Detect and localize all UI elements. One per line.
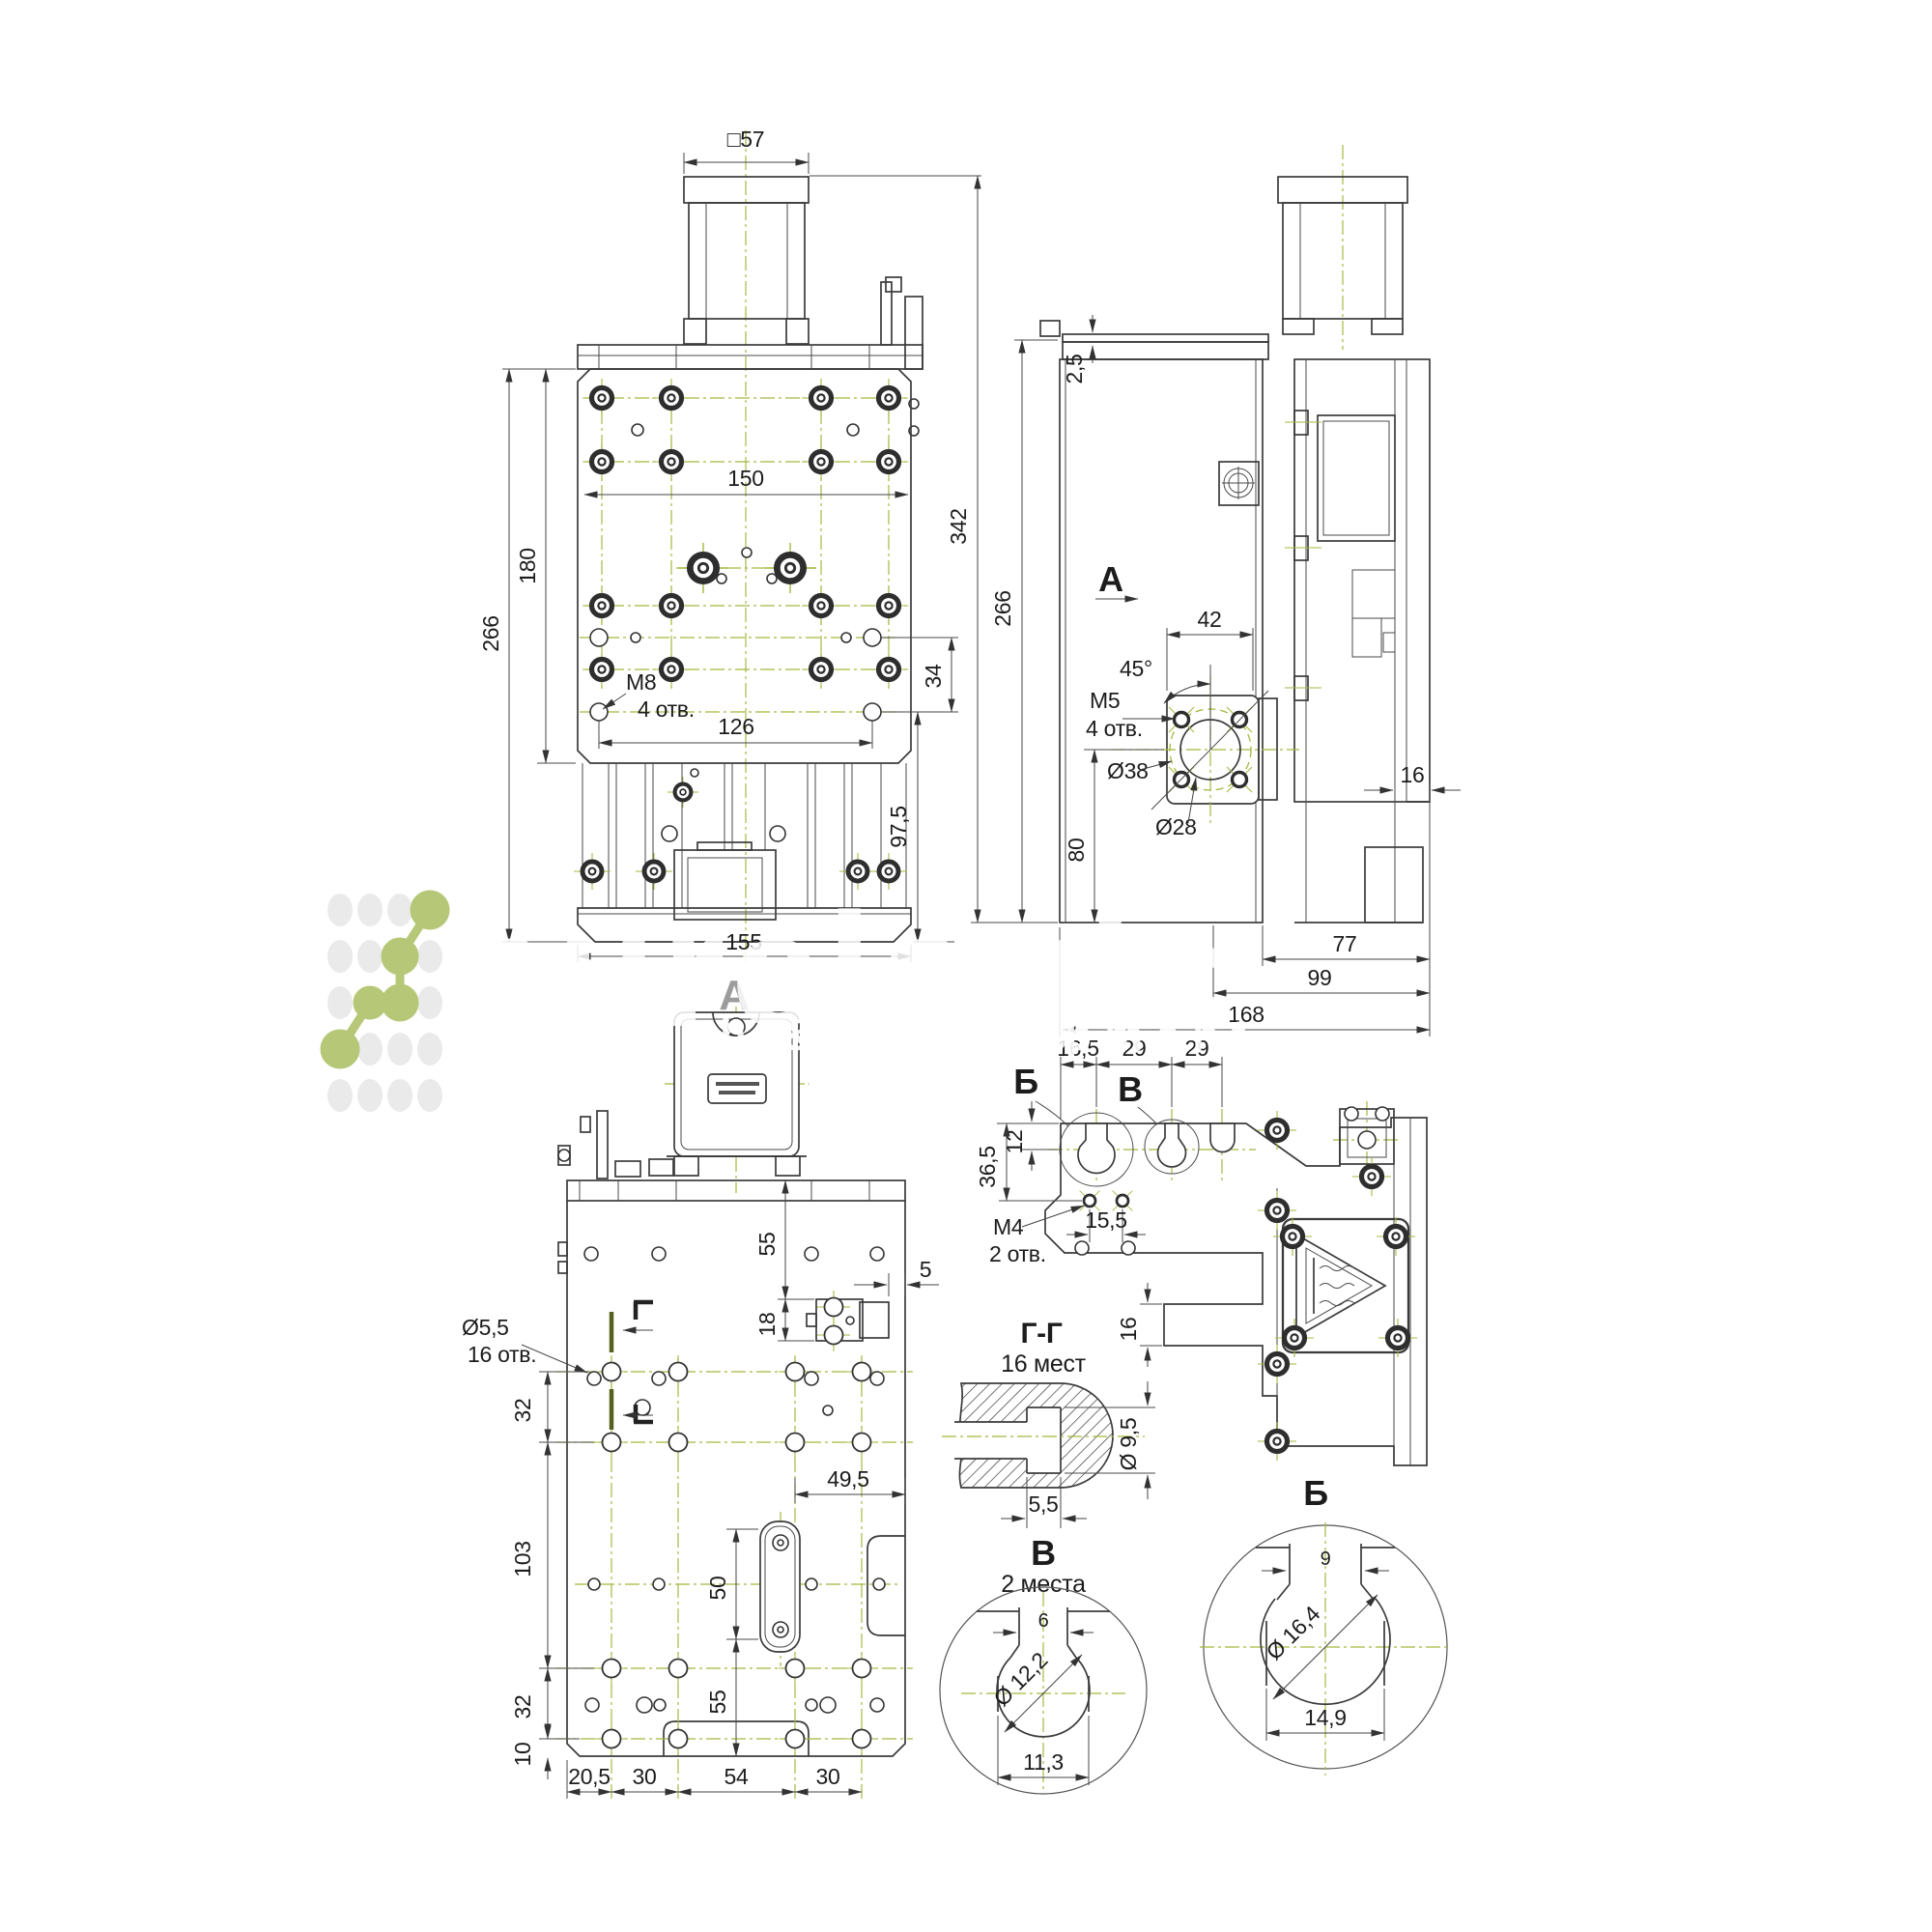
dim-slot-depth: 12 (1002, 1130, 1027, 1154)
front-view: □57 150 180 266 126 34 97,5 155 M8 4 отв… (478, 127, 958, 962)
detail-v-callout: В (1118, 1069, 1143, 1109)
top-view: А (462, 972, 939, 1799)
section-gg: Г-Г 16 мест Ø 9,5 5,5 (942, 1318, 1155, 1528)
dim-flange-offset: 42 (1198, 607, 1222, 632)
dim-counterbore-depth: 5,5 (1028, 1492, 1058, 1517)
dim-col-4: 30 (816, 1764, 840, 1789)
dim-edge-offset: 55 (754, 1233, 780, 1257)
dim-plate-thickness: 2,5 (1062, 354, 1087, 384)
label-thread-m8: M8 (626, 669, 656, 695)
label-thread-m5: M5 (1090, 688, 1120, 713)
dim-motor-width: □57 (727, 127, 765, 152)
dim-dia-b: Ø 16,4 (1261, 1601, 1324, 1664)
dim-slot-length: 50 (705, 1577, 730, 1601)
purelogic-logo-icon (325, 894, 445, 1112)
dim-slot-width-v: 6 (1038, 1610, 1049, 1632)
drawing-canvas: □57 150 180 266 126 34 97,5 155 M8 4 отв… (0, 0, 1932, 1932)
dim-depth-2: 99 (1308, 965, 1332, 990)
dim-hole-offset: 36,5 (975, 1146, 1000, 1188)
dim-row-gap-4: 10 (510, 1743, 535, 1767)
dim-holes-gap: 34 (921, 664, 946, 688)
section-places: 16 мест (1001, 1350, 1087, 1378)
dim-flange-angle: 45° (1120, 656, 1152, 681)
watermark-tagline: research & development (477, 1010, 1259, 1061)
view-a-label: А (1098, 559, 1123, 599)
dim-arm-width: 16 (1116, 1318, 1141, 1342)
dim-row-gap-2: 103 (510, 1541, 535, 1577)
dim-flat-width-v: 11,3 (1023, 1749, 1064, 1775)
detail-b: Б 9 Ø 16,4 14,9 (1200, 1483, 1447, 1776)
dim-height: 266 (478, 615, 503, 651)
dim-depth-1: 77 (1333, 931, 1357, 956)
label-thread-m5-count: 4 отв. (1086, 716, 1143, 741)
label-thread-m4: M4 (993, 1214, 1024, 1239)
dim-slot-width-b: 9 (1321, 1548, 1331, 1570)
dim-col-3: 54 (724, 1764, 749, 1789)
dim-side-height: 266 (990, 590, 1015, 626)
dim-row-gap-3: 32 (510, 1695, 535, 1719)
dim-slot-offset: 49,5 (827, 1466, 869, 1492)
label-thread-m4-count: 2 отв. (989, 1241, 1046, 1266)
detail-v: В 2 места 6 Ø 12,2 11,3 (940, 1533, 1147, 1794)
dim-overall-height: 342 (946, 508, 971, 544)
dim-side-gap: 5 (920, 1257, 932, 1282)
dim-rail-height: 97,5 (886, 806, 911, 848)
dim-switch-offset: 18 (754, 1313, 780, 1337)
watermark-brand-bottom: purelogic (415, 1884, 1198, 1932)
dim-plate-width: 150 (727, 466, 763, 491)
dim-col-1: 20,5 (568, 1764, 611, 1789)
label-thread-m8-count: 4 отв. (638, 696, 695, 722)
label-hole-dia: Ø5,5 (462, 1315, 509, 1340)
dim-bolt-circle: Ø38 (1107, 758, 1149, 783)
dim-thread-gap: 15,5 (1085, 1207, 1127, 1233)
section-title: Г-Г (1020, 1318, 1062, 1350)
dim-col-2: 30 (633, 1764, 657, 1789)
dim-flange-height: 80 (1064, 838, 1089, 863)
dim-rail-width: 16 (1401, 762, 1425, 787)
label-hole-count: 16 отв. (468, 1342, 536, 1367)
dim-holes-width: 126 (718, 714, 753, 739)
dim-plate-height: 180 (515, 548, 540, 583)
dim-slot-edge: 55 (705, 1690, 730, 1715)
dim-bore: Ø28 (1155, 814, 1197, 839)
detail-v-title: В (1031, 1533, 1056, 1573)
dim-row-gap-1: 32 (510, 1399, 535, 1423)
dim-counterbore: Ø 9,5 (1116, 1418, 1141, 1471)
dim-flat-width-b: 14,9 (1304, 1705, 1347, 1730)
detail-b-callout: Б (1013, 1062, 1038, 1101)
